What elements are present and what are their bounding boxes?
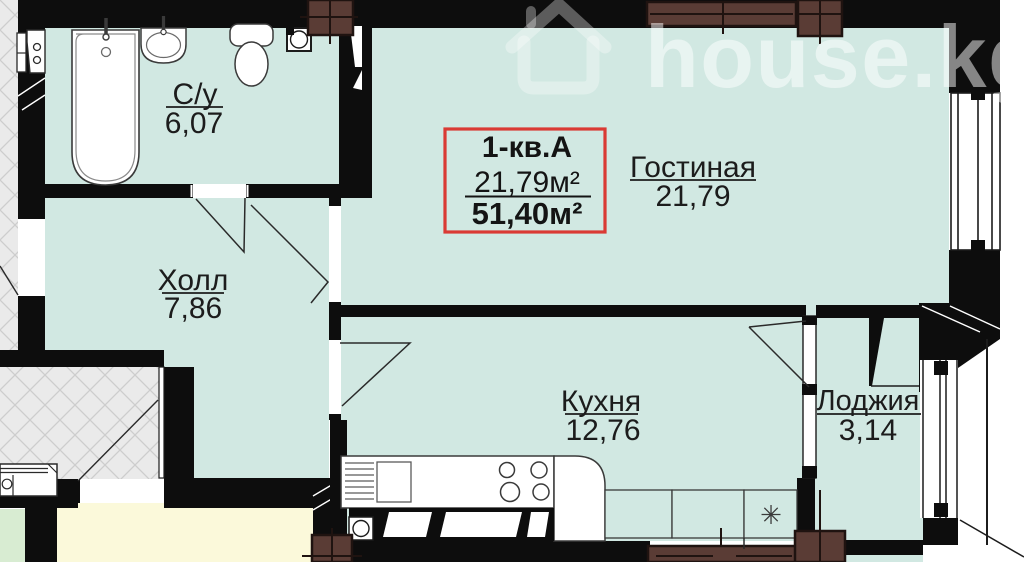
svg-text:6,07: 6,07 bbox=[165, 107, 223, 140]
svg-text:Лоджия: Лоджия bbox=[817, 385, 920, 417]
svg-text:51,40м²: 51,40м² bbox=[472, 196, 583, 231]
svg-text:7,86: 7,86 bbox=[164, 292, 222, 325]
svg-text:12,76: 12,76 bbox=[565, 414, 640, 447]
svg-text:21,79: 21,79 bbox=[655, 180, 730, 213]
svg-text:21,79м²: 21,79м² bbox=[474, 166, 580, 199]
svg-text:3,14: 3,14 bbox=[839, 414, 897, 447]
svg-text:1-кв.А: 1-кв.А bbox=[482, 131, 572, 164]
svg-text:house.kg: house.kg bbox=[645, 7, 1024, 106]
svg-text:✳: ✳ bbox=[760, 500, 782, 530]
